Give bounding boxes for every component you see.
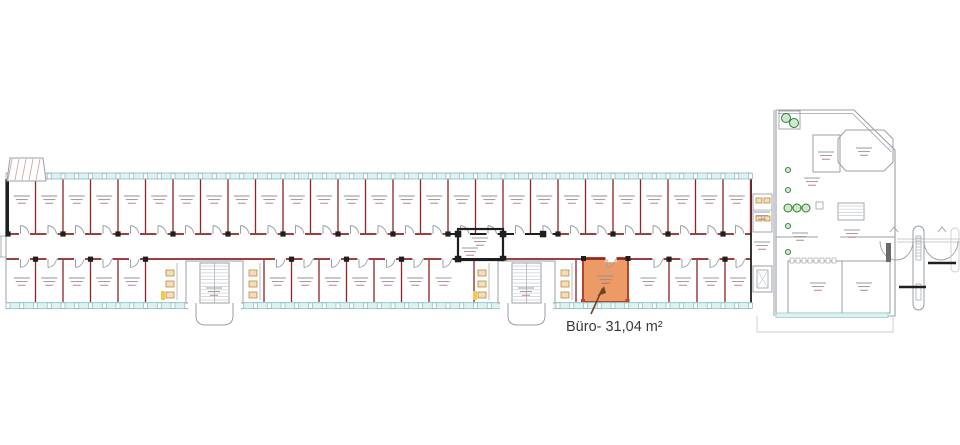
window-mullion — [529, 173, 533, 178]
window-mullion — [350, 303, 354, 308]
plant-icon — [785, 167, 790, 172]
window-mullion — [377, 303, 381, 308]
window-mullion — [295, 173, 299, 178]
window-mullion — [625, 303, 629, 308]
window-mullion — [419, 303, 423, 308]
wall-section-cut — [886, 243, 891, 262]
ramp-outline — [7, 158, 46, 181]
column-top — [445, 231, 450, 236]
window-mullion — [254, 173, 258, 178]
window-mullion — [584, 303, 588, 308]
window-mullion — [144, 173, 148, 178]
window-mullion — [611, 173, 615, 178]
window-mullion — [487, 303, 491, 308]
window-mullion — [240, 173, 244, 178]
window-mullion — [707, 303, 711, 308]
wc-accent — [161, 291, 165, 300]
window-mullion — [542, 173, 546, 178]
window-mullion — [666, 173, 670, 178]
window-mullion — [570, 303, 574, 308]
door-swing-arc — [924, 241, 958, 260]
wing-square — [816, 202, 823, 209]
window-mullion — [405, 173, 409, 178]
window-mullion — [199, 173, 203, 178]
window-mullion — [556, 173, 560, 178]
column-top — [390, 231, 395, 236]
window-mullion — [501, 173, 505, 178]
window-mullion — [707, 173, 711, 178]
column-bottom — [722, 257, 727, 262]
column-top — [665, 231, 670, 236]
window-mullion — [309, 173, 313, 178]
column-top — [610, 231, 615, 236]
wing-window-band — [776, 313, 888, 318]
window-mullion — [556, 303, 560, 308]
window-mullion — [171, 173, 175, 178]
wc-fixture — [756, 216, 762, 221]
window-mullion — [735, 173, 739, 178]
window-mullion — [694, 173, 698, 178]
window-mullion — [487, 173, 491, 178]
wc-fixture — [756, 198, 762, 203]
window-mullion — [254, 303, 258, 308]
window-mullion — [405, 303, 409, 308]
wc-fixture — [764, 216, 770, 221]
window-mullion — [281, 173, 285, 178]
window-mullion — [735, 303, 739, 308]
window-mullion — [625, 173, 629, 178]
window-mullion — [322, 173, 326, 178]
wc-fixture — [249, 281, 257, 287]
window-mullion — [611, 303, 615, 308]
window-mullion — [47, 303, 51, 308]
window-mullion — [116, 173, 120, 178]
window-mullion — [515, 173, 519, 178]
wing-teeth — [814, 258, 818, 263]
wing-bottom-rooms — [788, 261, 890, 313]
window-mullion — [47, 173, 51, 178]
window-mullion — [144, 303, 148, 308]
window-mullion — [157, 303, 161, 308]
window-mullion — [446, 303, 450, 308]
window-mullion — [336, 173, 340, 178]
window-mullion — [391, 173, 395, 178]
plan-graphics — [0, 110, 960, 332]
window-mullion — [377, 173, 381, 178]
window-mullion — [6, 303, 10, 308]
door-swing-arc — [880, 241, 913, 260]
window-mullion — [460, 173, 464, 178]
window-mullion — [721, 303, 725, 308]
window-mullion — [212, 173, 216, 178]
window-mullion — [749, 173, 753, 178]
window-mullion — [295, 303, 299, 308]
wing-teeth — [802, 258, 806, 263]
window-mullion — [460, 303, 464, 308]
wing-outline — [776, 110, 895, 316]
plant-icon — [785, 223, 790, 228]
window-mullion — [102, 173, 106, 178]
window-mullion — [61, 173, 65, 178]
wc-accent — [473, 291, 477, 300]
bush-icon — [793, 204, 801, 212]
window-mullion — [75, 303, 79, 308]
wc-fixture — [166, 281, 174, 287]
column-top — [225, 231, 230, 236]
column-top — [60, 231, 65, 236]
window-mullion — [171, 303, 175, 308]
window-mullion — [89, 303, 93, 308]
wc-fixture — [561, 281, 569, 287]
column-bottom — [33, 257, 38, 262]
window-mullion — [281, 303, 285, 308]
window-mullion — [432, 303, 436, 308]
window-mullion — [639, 173, 643, 178]
window-mullion — [75, 173, 79, 178]
wc-fixture — [249, 292, 257, 298]
wc-fixture — [478, 270, 486, 276]
wing-teeth — [790, 258, 794, 263]
window-mullion — [20, 303, 24, 308]
window-mullion — [652, 173, 656, 178]
wc-fixture — [478, 292, 486, 298]
wing-stair — [838, 203, 864, 220]
window-mullion — [130, 173, 134, 178]
wing-teeth — [832, 258, 836, 263]
window-mullion — [584, 173, 588, 178]
column-bottom — [143, 257, 148, 262]
column-top — [115, 231, 120, 236]
wing-teeth — [820, 258, 824, 263]
wing-teeth — [808, 258, 812, 263]
window-mullion — [89, 173, 93, 178]
octagon-room — [838, 130, 893, 171]
wing-small-room — [813, 135, 840, 172]
floorplan-canvas: Büro- 31,04 m² — [0, 0, 960, 445]
window-mullion — [130, 303, 134, 308]
column-bottom — [666, 257, 671, 262]
plant-icon — [785, 187, 790, 192]
door-post-detail — [916, 236, 921, 260]
tree-icon — [790, 119, 799, 128]
wc-fixture — [764, 198, 770, 203]
column-room — [581, 256, 586, 261]
wc-fixture — [166, 270, 174, 276]
window-mullion — [102, 303, 106, 308]
wing-outline-inner — [853, 114, 892, 153]
window-mullion — [267, 173, 271, 178]
window-mullion — [226, 173, 230, 178]
window-mullion — [364, 173, 368, 178]
window-mullion — [680, 303, 684, 308]
window-mullion — [157, 173, 161, 178]
column-bottom — [289, 257, 294, 262]
window-mullion — [350, 173, 354, 178]
window-mullion — [116, 303, 120, 308]
window-mullion — [570, 173, 574, 178]
window-mullion — [474, 173, 478, 178]
window-mullion — [474, 303, 478, 308]
column-top — [720, 231, 725, 236]
window-mullion — [446, 173, 450, 178]
column-top — [280, 231, 285, 236]
column-room — [626, 256, 631, 261]
wc-fixture — [249, 270, 257, 276]
column-bottom — [344, 257, 349, 262]
door-post-right — [951, 228, 959, 272]
window-mullion — [34, 303, 38, 308]
room-area-label: Büro- 31,04 m² — [566, 319, 663, 335]
window-mullion — [597, 303, 601, 308]
window-mullion — [364, 303, 368, 308]
column-top — [5, 231, 10, 236]
window-mullion — [391, 303, 395, 308]
wing-teeth — [796, 258, 800, 263]
window-mullion — [267, 303, 271, 308]
window-mullion — [721, 173, 725, 178]
window-mullion — [185, 173, 189, 178]
section-caret — [890, 227, 898, 232]
plant-icon — [785, 249, 790, 254]
floorplan-svg: Büro- 31,04 m² — [0, 0, 960, 445]
window-mullion — [694, 303, 698, 308]
window-mullion — [419, 173, 423, 178]
bush-icon — [784, 204, 792, 212]
wing-teeth — [826, 258, 830, 263]
window-mullion — [666, 303, 670, 308]
column-top — [335, 231, 340, 236]
bush-icon — [802, 204, 810, 212]
window-mullion — [597, 173, 601, 178]
window-mullion — [309, 303, 313, 308]
tree-icon — [782, 114, 791, 123]
window-mullion — [336, 303, 340, 308]
section-caret — [938, 227, 946, 232]
wc-fixture — [561, 292, 569, 298]
column-bottom — [88, 257, 93, 262]
window-mullion — [322, 303, 326, 308]
column-lobby — [540, 231, 547, 238]
wc-fixture — [166, 292, 174, 298]
column-top — [555, 231, 560, 236]
window-mullion — [652, 303, 656, 308]
wc-fixture — [478, 281, 486, 287]
window-mullion — [639, 303, 643, 308]
window-mullion — [749, 303, 753, 308]
wc-fixture — [561, 270, 569, 276]
column-top — [170, 231, 175, 236]
window-mullion — [61, 303, 65, 308]
window-mullion — [680, 173, 684, 178]
window-mullion — [432, 173, 436, 178]
column-bottom — [399, 257, 404, 262]
